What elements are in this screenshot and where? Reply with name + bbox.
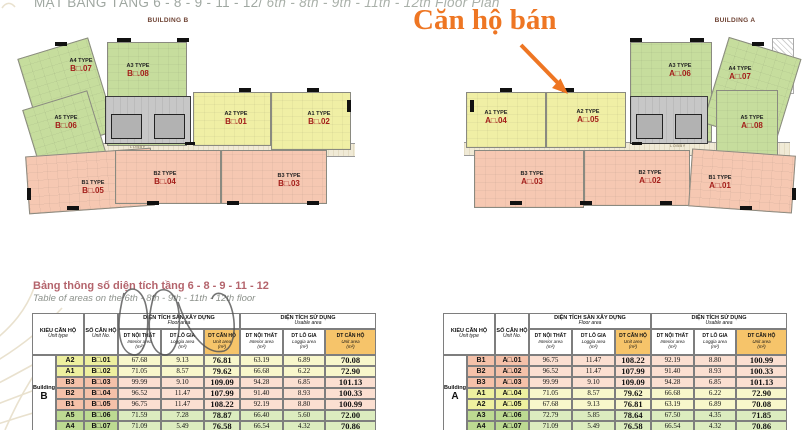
header-text: Usable area [706,321,733,327]
row-usable-interior: 66.40 [240,410,283,421]
row-unit-no: B□.01 [84,355,118,366]
row-usable-unit-area: 72.90 [325,366,376,377]
row-unit-area: 107.99 [204,388,240,399]
unit-number-label: B□.05 [65,186,121,195]
row-usable-unit-area: 70.86 [736,421,787,430]
row-usable-interior: 63.19 [240,355,283,366]
row-unit-type: A1 [56,366,84,377]
unit-label: A4 TYPEA□.07 [712,66,768,82]
row-usable-loggia: 8.93 [694,366,736,377]
header-text: B [40,391,47,402]
unit-label: A4 TYPEB□.07 [53,58,109,74]
row-unit-area: 108.22 [615,355,651,366]
unit-label: B2 TYPEB□.04 [137,171,193,187]
row-loggia: 8.57 [161,366,204,377]
row-usable-loggia: 4.32 [694,421,736,430]
row-loggia: 9.10 [161,377,204,388]
row-unit-area: 76.58 [615,421,651,430]
header-unit-type: KIỂU CĂN HỘUnit type [32,313,84,355]
unit-number-label: A□.06 [652,69,708,78]
row-unit-type: A1 [467,388,495,399]
header-text: (m²) [546,345,554,350]
building-a-floor-plan: LOBBYA1 TYPEA□.04A2 TYPEA□.05A3 TYPEA□.0… [452,38,797,216]
row-interior: 71.09 [118,421,161,430]
unit-number-label: B□.01 [208,117,264,126]
row-usable-loggia: 6.85 [694,377,736,388]
row-loggia: 9.10 [572,377,615,388]
row-unit-no: B□.02 [84,366,118,377]
header-floor-interior: DT NỘI THẤTInterior area(m²) [529,329,572,355]
row-unit-area: 108.22 [204,399,240,410]
wall-column [500,88,512,92]
row-unit-area: 76.81 [615,399,651,410]
header-floor-unit-area: DT CĂN HỘUnit area(m²) [204,329,240,355]
header-text: (m²) [711,345,719,350]
row-unit-no: B□.06 [84,410,118,421]
header-floor-area-group: DIỆN TÍCH SÀN XÂY DỰNGFloor area [118,313,240,329]
header-text: (m²) [629,345,637,350]
row-loggia: 5.49 [572,421,615,430]
apartment-for-sale-label: Căn hộ bán [413,4,556,37]
row-interior: 71.59 [118,410,161,421]
header-usable-area-group: DIỆN TÍCH SỬ DỤNGUsable area [651,313,787,329]
wall-column [752,42,764,46]
unit-number-label: B□.08 [110,69,166,78]
header-floor-loggia: DT LÔ GIALoggia area(m²) [572,329,615,355]
wall-column [660,201,672,205]
row-unit-area: 76.81 [204,355,240,366]
wall-column [227,201,239,205]
row-interior: 99.99 [529,377,572,388]
row-usable-unit-area: 72.90 [736,388,787,399]
brochure-page: MẶT BẰNG TẦNG 6 - 8 - 9 - 11 - 12/ 6th -… [0,0,810,430]
row-unit-no: A□.03 [495,377,529,388]
row-unit-no: A□.04 [495,388,529,399]
wall-column [740,206,752,210]
row-unit-type: A4 [467,421,495,430]
row-unit-area: 109.09 [204,377,240,388]
unit-number-label: A□.03 [504,177,560,186]
row-interior: 96.52 [118,388,161,399]
row-usable-interior: 92.19 [651,355,694,366]
row-unit-area: 78.87 [204,410,240,421]
row-usable-unit-area: 70.08 [325,355,376,366]
row-usable-unit-area: 70.08 [736,399,787,410]
row-usable-loggia: 5.60 [283,410,325,421]
row-unit-area: 107.99 [615,366,651,377]
row-unit-type: A2 [56,355,84,366]
unit-label: B3 TYPEA□.03 [504,171,560,187]
row-unit-no: B□.03 [84,377,118,388]
row-unit-type: B2 [467,366,495,377]
row-interior: 72.79 [529,410,572,421]
page-title-vi: MẶT BẰNG TẦNG 6 - 8 - 9 - 11 - 12/ [34,0,267,10]
wall-column [27,188,31,200]
wall-column [510,201,522,205]
header-usable-unit-area: DT CĂN HỘUnit area(m²) [325,329,376,355]
row-usable-interior: 66.54 [240,421,283,430]
row-loggia: 8.57 [572,388,615,399]
unit-number-label: A□.05 [560,115,616,124]
row-usable-interior: 91.40 [651,366,694,377]
row-loggia: 5.85 [572,410,615,421]
row-usable-loggia: 8.80 [283,399,325,410]
row-interior: 67.68 [529,399,572,410]
row-interior: 71.05 [118,366,161,377]
header-text: (m²) [757,345,765,350]
wall-column [117,38,131,42]
header-usable-interior: DT NỘI THẤTInterior area(m²) [240,329,283,355]
unit-number-label: A□.08 [724,121,780,130]
header-text: Unit No. [92,334,110,340]
header-text: Floor area [168,321,191,327]
header-text: Unit No. [503,334,521,340]
row-loggia: 11.47 [572,355,615,366]
header-text: (m²) [135,345,143,350]
row-unit-area: 79.62 [204,366,240,377]
lobby-label: LOBBY [670,143,686,148]
row-unit-no: A□.01 [495,355,529,366]
row-usable-interior: 94.28 [240,377,283,388]
header-usable-loggia: DT LÔ GIALoggia area(m²) [694,329,736,355]
lobby-label: LOBBY [130,144,146,149]
building-name-cell: BuildingA [443,355,467,430]
header-usable-area-group: DIỆN TÍCH SỬ DỤNGUsable area [240,313,376,329]
header-usable-loggia: DT LÔ GIALoggia area(m²) [283,329,325,355]
row-usable-loggia: 8.80 [694,355,736,366]
row-interior: 71.09 [529,421,572,430]
row-unit-type: B3 [56,377,84,388]
row-usable-loggia: 4.32 [283,421,325,430]
row-usable-unit-area: 101.13 [736,377,787,388]
row-usable-interior: 66.54 [651,421,694,430]
row-usable-loggia: 6.22 [283,366,325,377]
wall-column [562,88,574,92]
header-text: (m²) [668,345,676,350]
row-usable-unit-area: 101.13 [325,377,376,388]
header-usable-interior: DT NỘI THẤTInterior area(m²) [651,329,694,355]
row-usable-loggia: 6.22 [694,388,736,399]
row-usable-interior: 66.68 [651,388,694,399]
header-text: (m²) [178,345,186,350]
row-unit-no: A□.05 [495,399,529,410]
header-floor-loggia: DT LÔ GIALoggia area(m²) [161,329,204,355]
row-usable-loggia: 4.35 [694,410,736,421]
row-interior: 99.99 [118,377,161,388]
row-unit-area: 79.62 [615,388,651,399]
unit-number-label: B□.02 [291,117,347,126]
row-unit-area: 109.09 [615,377,651,388]
row-usable-unit-area: 71.85 [736,410,787,421]
row-usable-interior: 94.28 [651,377,694,388]
unit-number-label: B□.06 [38,121,94,130]
wall-column [185,142,195,145]
area-table-title: Bảng thông số diện tích tầng 6 - 8 - 9 -… [33,280,269,292]
header-text: (m²) [300,345,308,350]
row-loggia: 7.28 [161,410,204,421]
unit-number-label: A□.02 [622,176,678,185]
row-interior: 96.75 [529,355,572,366]
unit-label: A2 TYPEB□.01 [208,111,264,127]
unit-label: B1 TYPEB□.05 [65,180,121,196]
row-unit-no: A□.07 [495,421,529,430]
building-name-cell: BuildingB [32,355,56,430]
building-b-label: BUILDING B [133,17,203,24]
wall-column [147,201,159,205]
row-unit-type: A4 [56,421,84,430]
unit-label: A2 TYPEA□.05 [560,109,616,125]
unit-label: B2 TYPEA□.02 [622,170,678,186]
row-loggia: 9.13 [572,399,615,410]
unit-label: B1 TYPEA□.01 [692,175,748,191]
wall-column [307,88,319,92]
row-unit-no: A□.06 [495,410,529,421]
row-unit-type: A2 [467,399,495,410]
row-loggia: 11.47 [161,388,204,399]
row-loggia: 9.13 [161,355,204,366]
building-a-area-table: KIỂU CĂN HỘUnit typeSỐ CĂN HỘUnit No.DIỆ… [443,313,787,430]
wall-column [239,88,251,92]
row-unit-type: B2 [56,388,84,399]
header-usable-unit-area: DT CĂN HỘUnit area(m²) [736,329,787,355]
header-floor-area-group: DIỆN TÍCH SÀN XÂY DỰNGFloor area [529,313,651,329]
unit-number-label: A□.04 [468,116,524,125]
unit-label: A5 TYPEB□.06 [38,115,94,131]
row-interior: 96.75 [118,399,161,410]
row-loggia: 11.47 [161,399,204,410]
row-usable-unit-area: 100.33 [325,388,376,399]
row-unit-type: B3 [467,377,495,388]
row-usable-interior: 92.19 [240,399,283,410]
header-text: Unit type [48,334,68,340]
header-text: (m²) [218,345,226,350]
header-text: (m²) [257,345,265,350]
row-unit-type: A3 [467,410,495,421]
building-b-floor-plan: LOBBYA4 TYPEB□.07A3 TYPEB□.08A5 TYPEB□.0… [25,38,355,216]
wall-column [632,142,642,145]
row-unit-no: B□.07 [84,421,118,430]
unit-label: A3 TYPEA□.06 [652,63,708,79]
row-usable-loggia: 8.93 [283,388,325,399]
row-usable-unit-area: 70.86 [325,421,376,430]
row-loggia: 11.47 [572,366,615,377]
header-unit-no: SỐ CĂN HỘUnit No. [84,313,118,355]
wall-column [177,38,189,42]
building-a-label: BUILDING A [700,17,770,24]
row-loggia: 5.49 [161,421,204,430]
unit-number-label: A□.01 [692,181,748,190]
wall-column [67,206,79,210]
wall-column [580,201,592,205]
row-usable-unit-area: 100.99 [325,399,376,410]
row-unit-no: B□.05 [84,399,118,410]
row-unit-no: B□.04 [84,388,118,399]
header-text: Usable area [295,321,322,327]
header-floor-unit-area: DT CĂN HỘUnit area(m²) [615,329,651,355]
row-usable-interior: 67.50 [651,410,694,421]
row-usable-loggia: 6.89 [694,399,736,410]
unit-label: B3 TYPEB□.03 [261,173,317,189]
wall-column [55,42,67,46]
building-b-area-table: KIỂU CĂN HỘUnit typeSỐ CĂN HỘUnit No.DIỆ… [32,313,376,430]
header-text: (m²) [589,345,597,350]
unit-number-label: B□.04 [137,177,193,186]
wall-column [792,188,796,200]
unit-label: A1 TYPEB□.02 [291,111,347,127]
row-interior: 71.05 [529,388,572,399]
row-usable-unit-area: 100.99 [736,355,787,366]
wall-column [690,38,704,42]
row-usable-loggia: 6.89 [283,355,325,366]
row-unit-type: B1 [467,355,495,366]
header-unit-type: KIỂU CĂN HỘUnit type [443,313,495,355]
row-usable-unit-area: 100.33 [736,366,787,377]
row-unit-type: A5 [56,410,84,421]
header-text: Unit type [459,334,479,340]
elevator-core [630,96,708,144]
row-unit-area: 78.64 [615,410,651,421]
header-floor-interior: DT NỘI THẤTInterior area(m²) [118,329,161,355]
unit-label: A5 TYPEA□.08 [724,115,780,131]
header-text: (m²) [346,345,354,350]
row-interior: 96.52 [529,366,572,377]
wall-column [307,201,319,205]
row-usable-interior: 91.40 [240,388,283,399]
row-interior: 67.68 [118,355,161,366]
row-unit-type: B1 [56,399,84,410]
unit-number-label: A□.07 [712,72,768,81]
wall-column [347,100,351,112]
header-unit-no: SỐ CĂN HỘUnit No. [495,313,529,355]
unit-label: A1 TYPEA□.04 [468,110,524,126]
row-usable-interior: 63.19 [651,399,694,410]
unit-number-label: B□.03 [261,179,317,188]
row-usable-unit-area: 72.00 [325,410,376,421]
row-usable-interior: 66.68 [240,366,283,377]
header-text: A [451,391,458,402]
row-unit-area: 76.58 [204,421,240,430]
wall-column [630,38,642,42]
row-unit-no: A□.02 [495,366,529,377]
row-usable-loggia: 6.85 [283,377,325,388]
unit-label: A3 TYPEB□.08 [110,63,166,79]
elevator-core [105,96,191,144]
header-text: Floor area [579,321,602,327]
unit-number-label: B□.07 [53,64,109,73]
area-table-subtitle: Table of areas on the 6th - 8th - 9th - … [33,293,255,304]
